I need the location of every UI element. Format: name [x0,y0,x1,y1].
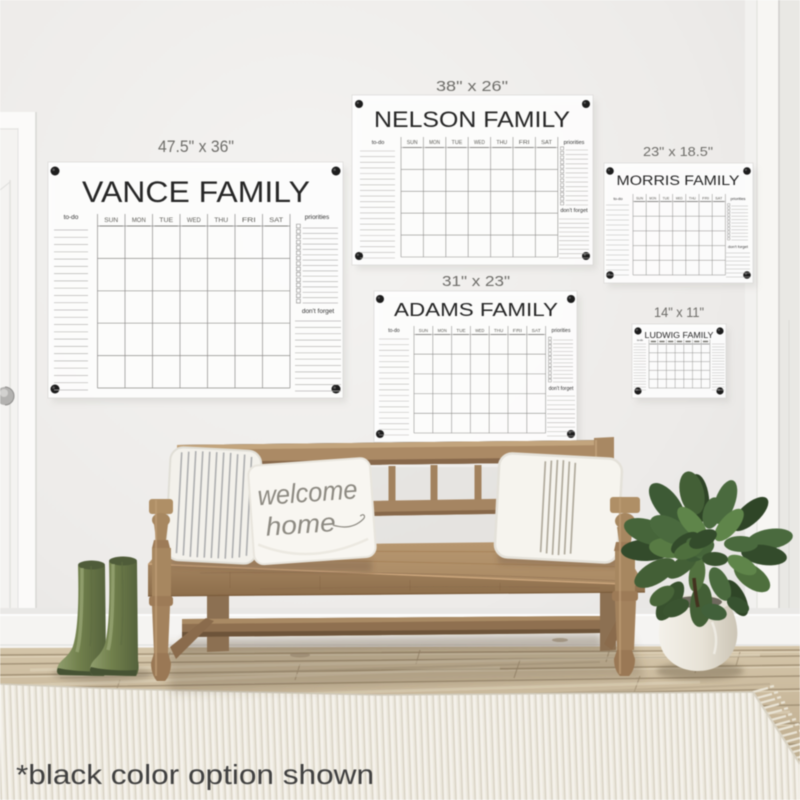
svg-text:don't forget: don't forget [728,244,749,249]
svg-text:THU: THU [689,197,697,201]
svg-text:TUE: TUE [452,140,463,146]
svg-text:to-do: to-do [613,196,623,201]
svg-text:SUN: SUN [636,197,644,201]
svg-text:SAT: SAT [532,328,541,333]
svg-text:SAT: SAT [541,140,553,146]
svg-text:38" x 26": 38" x 26" [436,78,508,95]
svg-text:MON: MON [132,217,146,224]
svg-text:SUN: SUN [104,217,118,224]
svg-text:to-do: to-do [372,140,385,146]
svg-text:FRI: FRI [513,328,522,333]
svg-text:SAT: SAT [715,197,722,201]
svg-text:ADAMS FAMILY: ADAMS FAMILY [394,299,558,320]
svg-text:WED: WED [187,217,201,224]
svg-text:priorities: priorities [564,140,585,146]
svg-text:WED: WED [474,140,485,146]
svg-text:THU: THU [496,140,507,146]
svg-text:23" x 18.5": 23" x 18.5" [643,144,713,159]
svg-text:*black color option shown: *black color option shown [16,759,374,790]
svg-text:FRI: FRI [242,217,256,224]
svg-text:TUE: TUE [456,328,465,333]
svg-text:WED: WED [475,328,485,333]
svg-text:priorities: priorities [305,214,330,221]
svg-text:MON: MON [438,328,447,333]
svg-text:VANCE FAMILY: VANCE FAMILY [82,176,310,209]
svg-text:LUDWIG FAMILY: LUDWIG FAMILY [645,330,714,340]
svg-text:priorities: priorities [552,328,571,334]
svg-text:14" x 11": 14" x 11" [654,304,704,320]
svg-text:to-do: to-do [637,338,643,342]
svg-text:TUE: TUE [663,197,671,201]
svg-text:FRI: FRI [702,197,709,201]
svg-text:don't forget: don't forget [302,308,335,315]
svg-text:home: home [265,507,337,542]
svg-text:TUE: TUE [159,217,173,224]
svg-text:FRI: FRI [519,140,530,146]
svg-text:don't forget: don't forget [560,208,588,214]
svg-text:31" x 23": 31" x 23" [442,273,510,290]
svg-text:MORRIS FAMILY: MORRIS FAMILY [617,173,740,188]
svg-text:NELSON FAMILY: NELSON FAMILY [374,107,570,132]
svg-text:WED: WED [676,197,683,201]
svg-text:don't forget: don't forget [549,386,574,392]
svg-text:SUN: SUN [419,328,428,333]
svg-text:MON: MON [649,197,656,201]
svg-text:THU: THU [494,328,503,333]
svg-text:SAT: SAT [269,217,283,224]
svg-text:SUN: SUN [407,140,418,146]
svg-text:MON: MON [429,140,440,146]
svg-text:47.5" x 36": 47.5" x 36" [158,137,234,156]
svg-text:to-do: to-do [388,328,400,334]
svg-text:priorities: priorities [730,196,745,201]
svg-text:to-do: to-do [64,214,79,221]
svg-text:THU: THU [214,217,228,224]
